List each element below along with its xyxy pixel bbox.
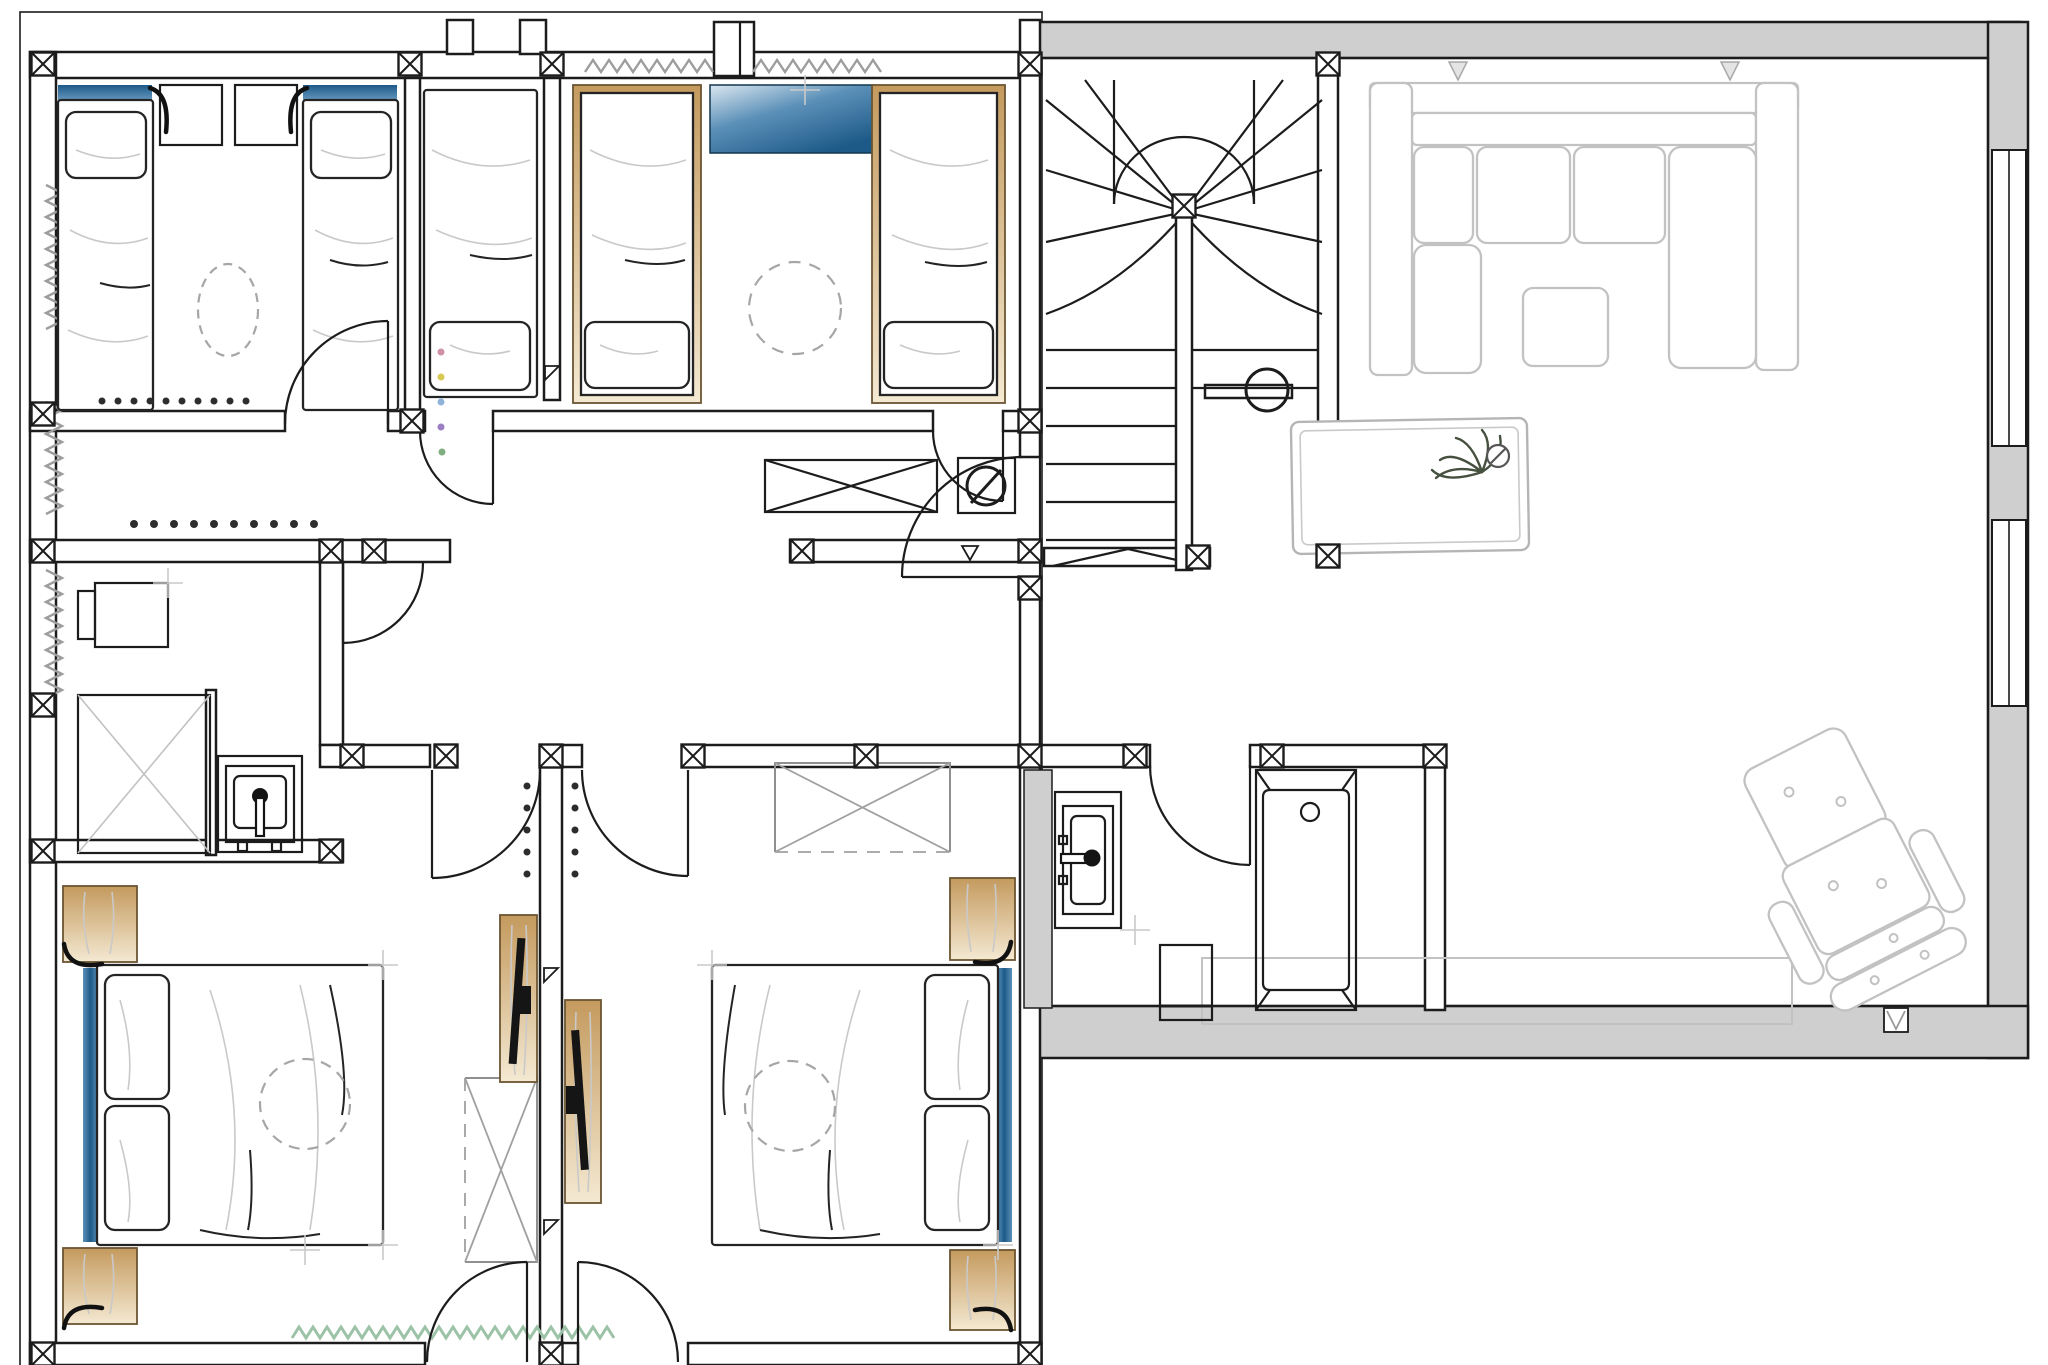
twin-bed [303,100,398,410]
door-marker [1884,1008,1908,1032]
twin-bed [58,100,153,410]
nightstand [63,886,137,965]
blue-chest [710,85,874,153]
door-arc [578,1262,678,1362]
wall-seg [790,540,1040,562]
utility-room [78,563,423,853]
nightstand [950,1250,1015,1330]
radiator-zigzag [292,1327,614,1338]
single-bed-wood-frame [872,85,1005,403]
wall-divider-bedrooms [540,767,562,1365]
duct-shaft [1024,770,1052,1008]
wall-seg [493,411,933,431]
rug [1291,418,1529,554]
kids-bedroom-2 [424,85,1005,403]
ottoman [1523,288,1608,366]
nightstand [235,85,297,145]
window-marker [1721,62,1739,80]
tv-sideboard [500,915,537,1082]
double-bed [712,965,998,1245]
floor-plan-page [0,0,2048,1365]
wall-bathroom-right [1425,745,1445,1010]
wall-gray-bottom [1030,1006,2028,1058]
stair-spine-wall [1176,200,1192,570]
floor-plan-svg [0,0,2048,1365]
shower-crossed [78,695,210,853]
wall-seg [688,1343,1040,1365]
appliance-circle-slash [958,458,1015,513]
wall-seg [320,745,430,767]
door-arc [343,563,423,643]
kids-bedroom-1 [58,85,398,424]
ceiling-light-dashed [749,262,841,354]
washbasin [218,756,302,852]
bedroom-4 [524,763,1016,1362]
chimney-block [714,22,754,76]
chair [78,591,95,639]
nightstand [950,878,1015,963]
nightstand [160,85,222,145]
headboard-blue-strip [997,968,1012,1242]
window-marker [1449,62,1467,80]
tv-sideboard [565,1000,601,1203]
wall-seg [30,1343,425,1365]
door-arc [420,431,493,504]
bathroom [1055,765,1356,1020]
window-right-1 [1992,150,2026,446]
facade-stub [520,20,546,54]
wall-utility-right [320,562,343,745]
wall-seg [30,540,450,562]
wall-wing-sep [1020,20,1040,457]
bathtub [1256,770,1356,1010]
wall-gray-top [1030,22,2020,58]
door-arc [582,770,688,876]
washbasin [1055,792,1121,928]
ceiling-light-dashed [198,264,258,356]
desk [95,583,168,647]
wall-seg [562,1343,578,1365]
winder-staircase [1046,80,1322,570]
window-right-2 [1992,520,2026,706]
wall-seg [30,411,285,431]
nightstand [63,1248,137,1328]
crossed-table [765,460,937,512]
wardrobe-crossed [465,1078,537,1262]
wardrobe-crossed [775,763,950,852]
wall-divider-kids [405,78,420,411]
wardrobe-spot-row [130,520,318,528]
wall-top [30,52,1040,78]
door-arc [1150,765,1250,865]
double-bed [97,965,383,1245]
single-bed-wood-frame [573,85,701,403]
facade-stub [447,20,473,54]
headboard-blue-strip [83,968,98,1242]
door-arc [427,1262,527,1362]
wall-partition [544,78,560,400]
